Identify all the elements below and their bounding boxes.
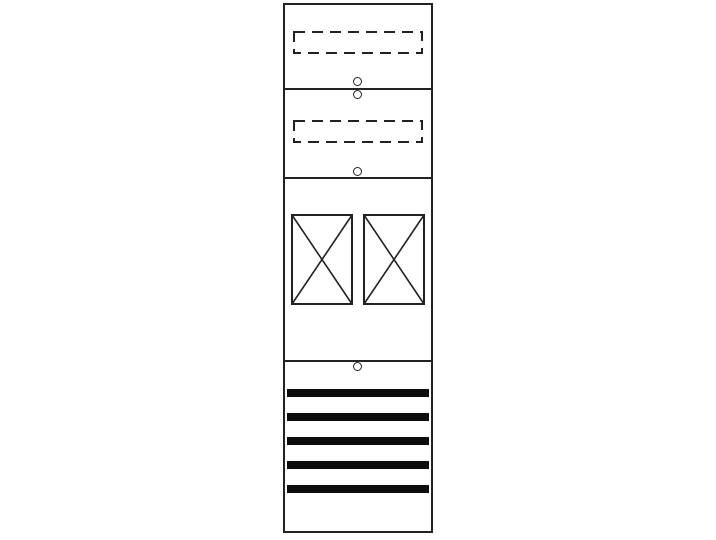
dashed-rectangle-icon [293,31,423,54]
busbar-row [287,461,429,469]
fixing-hole [353,362,362,371]
busbar-row [287,413,429,421]
meter-position-symbol [291,214,353,305]
busbar-row [287,389,429,397]
fixing-hole [353,167,362,176]
crossed-rectangle-icon [291,214,353,305]
meter-position-row [285,214,431,305]
fixing-hole [353,77,362,86]
dashed-cutout [293,120,423,143]
busbar-rows [287,389,429,493]
fixing-hole [353,90,362,99]
dashed-cutout [293,31,423,54]
crossed-rectangle-icon [363,214,425,305]
meter-panel-drawing [283,3,433,533]
busbar-row [287,437,429,445]
section-divider [285,177,431,179]
meter-position-symbol [363,214,425,305]
busbar-row [287,485,429,493]
page-background: { "figure": { "name": "meter-panel-field… [0,0,716,540]
dashed-rectangle-icon [293,120,423,143]
